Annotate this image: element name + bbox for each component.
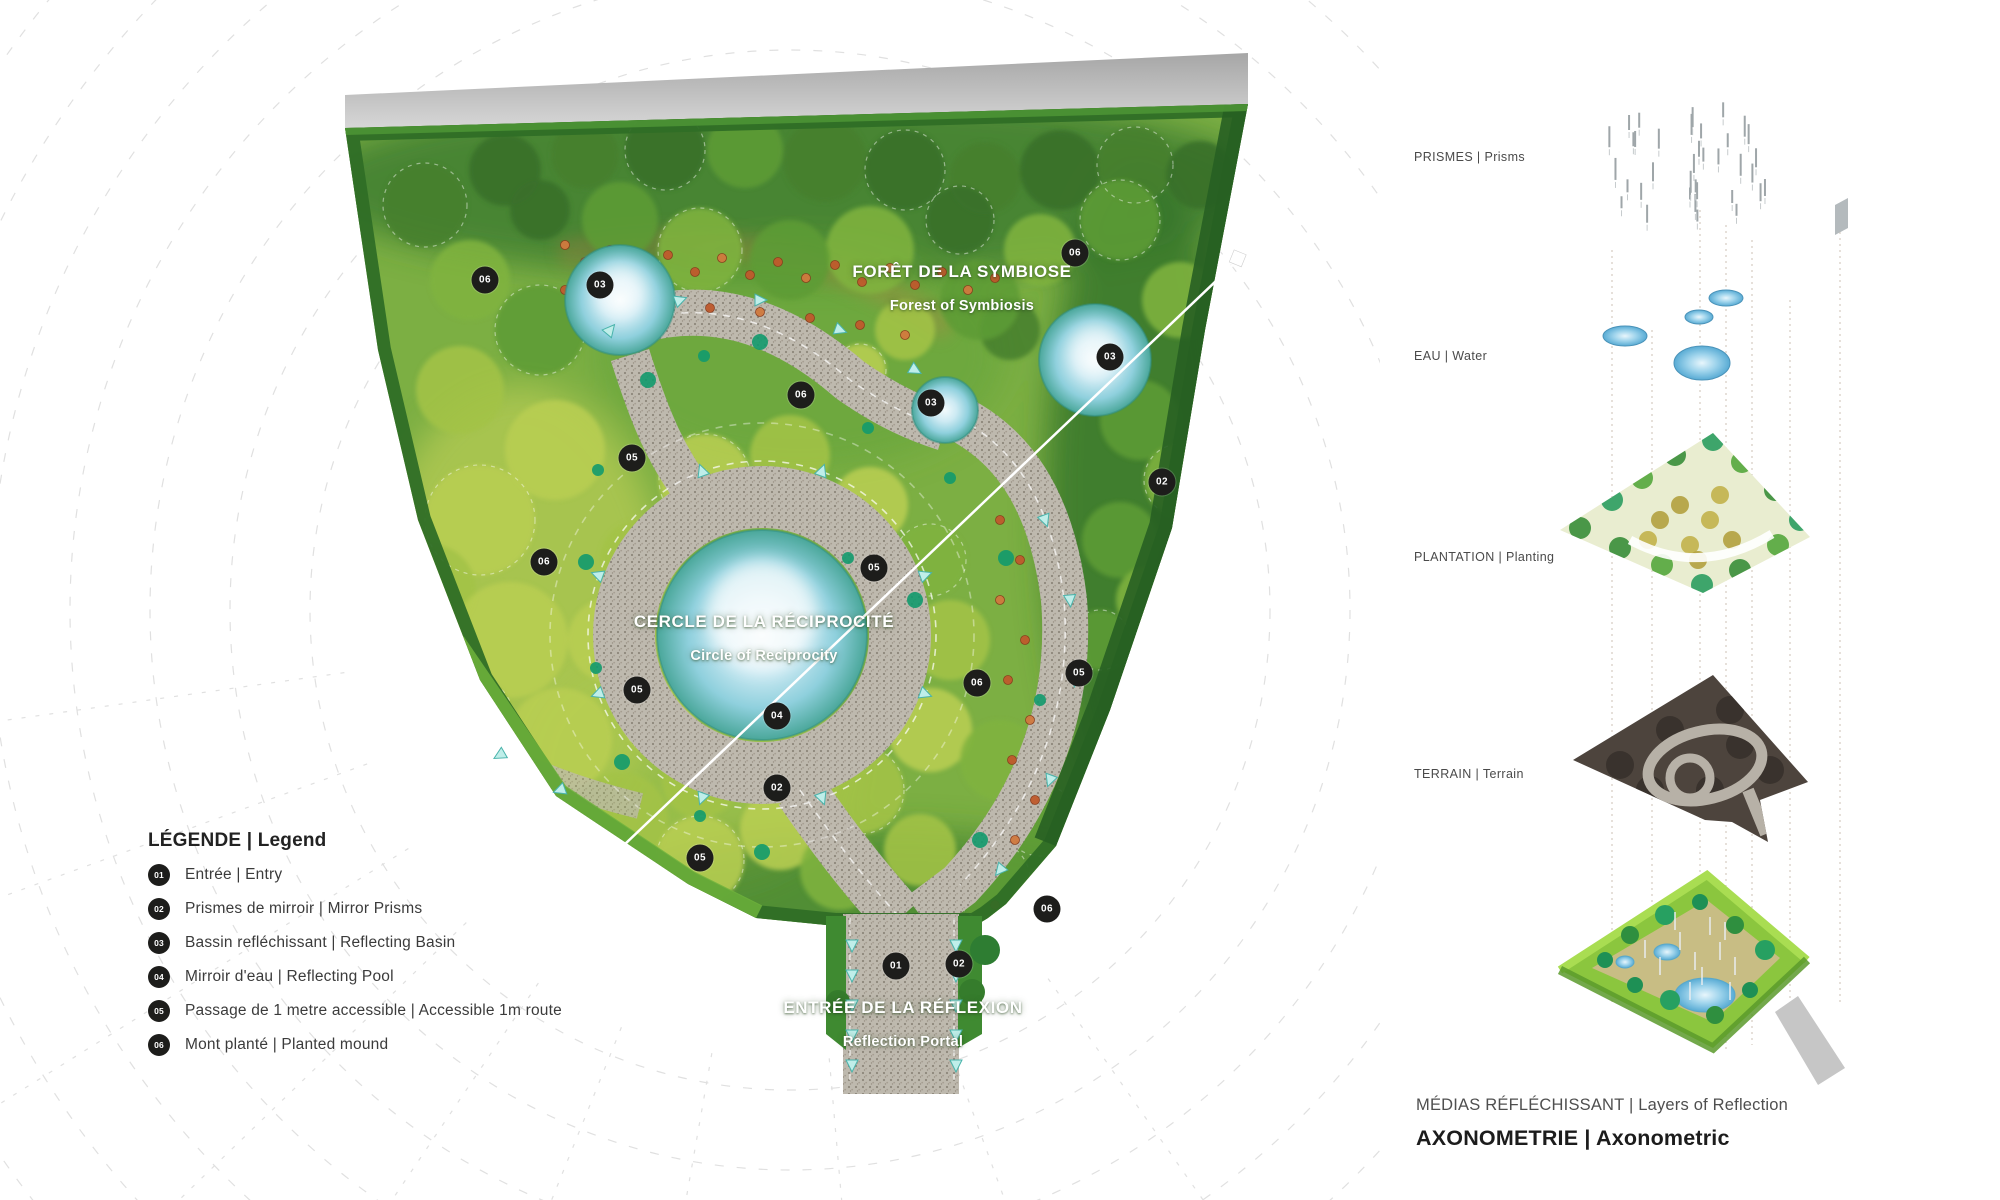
legend-item: 05 Passage de 1 metre accessible | Acces… (148, 1000, 688, 1022)
terrain-layer (1573, 675, 1808, 842)
plan-marker-number: 06 (538, 557, 550, 568)
legend-item: 06 Mont planté | Planted mound (148, 1034, 688, 1056)
legend-item-number: 04 (148, 966, 170, 988)
legend-title: LÉGENDE | Legend (148, 830, 688, 852)
axon-caption-title: AXONOMETRIE | Axonometric (1416, 1126, 1730, 1151)
planting-layer (1560, 429, 1811, 596)
plan-marker-number: 06 (971, 678, 983, 689)
plan-marker: 03 (918, 390, 945, 417)
plan-marker: 06 (1062, 240, 1089, 267)
legend-item: 04 Mirroir d'eau | Reflecting Pool (148, 966, 688, 988)
plan-marker: 02 (764, 775, 791, 802)
legend: LÉGENDE | Legend 01 Entrée | Entry 02 Pr… (148, 830, 688, 1056)
plan-marker-number: 02 (953, 959, 965, 970)
legend-item-label: Mirroir d'eau | Reflecting Pool (185, 968, 394, 986)
legend-item-number: 06 (148, 1034, 170, 1056)
plan-marker-number: 04 (771, 711, 783, 722)
plan-marker-number: 05 (1073, 668, 1085, 679)
plan-marker-number: 02 (1156, 477, 1168, 488)
plan-marker: 06 (531, 549, 558, 576)
plan-marker-number: 06 (795, 390, 807, 401)
plan-label: FORÊT DE LA SYMBIOSE Forest of Symbiosis (852, 262, 1071, 314)
plan-marker: 05 (1066, 660, 1093, 687)
legend-item-label: Passage de 1 metre accessible | Accessib… (185, 1002, 562, 1020)
axon-layer-label: PRISMES | Prisms (1414, 150, 1525, 164)
plan-marker-number: 01 (890, 961, 902, 972)
plan-label: ENTRÉE DE LA RÉFLEXION Reflection Portal (783, 998, 1022, 1050)
legend-item: 02 Prismes de mirroir | Mirror Prisms (148, 898, 688, 920)
prisms-layer (1609, 102, 1765, 230)
exit-path (1775, 996, 1845, 1085)
plan-label-english: Circle of Reciprocity (634, 648, 894, 664)
plan-marker: 02 (1149, 469, 1176, 496)
composite-layer (1560, 875, 1845, 1085)
axon-layer-label: EAU | Water (1414, 349, 1487, 363)
axon-layer-label: TERRAIN | Terrain (1414, 767, 1524, 781)
plan-marker-number: 05 (694, 853, 706, 864)
plan-label-french: CERCLE DE LA RÉCIPROCITÉ (634, 612, 894, 632)
legend-item-label: Entrée | Entry (185, 866, 282, 884)
plan-marker: 04 (764, 703, 791, 730)
plan-marker: 06 (788, 382, 815, 409)
mirror-panel (1835, 198, 1848, 235)
legend-item-number: 03 (148, 932, 170, 954)
landscape-plan-sheet: FORÊT DE LA SYMBIOSE Forest of Symbiosis… (0, 0, 2000, 1200)
axonometric-diagram (1380, 0, 2000, 1200)
plan-marker: 06 (472, 267, 499, 294)
plan-label-french: FORÊT DE LA SYMBIOSE (852, 262, 1071, 282)
plan-marker-number: 05 (631, 685, 643, 696)
legend-item: 01 Entrée | Entry (148, 864, 688, 886)
plan-marker-number: 03 (594, 280, 606, 291)
plan-marker-number: 03 (925, 398, 937, 409)
plan-marker-number: 03 (1104, 352, 1116, 363)
plan-marker: 05 (619, 445, 646, 472)
plan-label-french: ENTRÉE DE LA RÉFLEXION (783, 998, 1022, 1018)
plan-marker-number: 05 (626, 453, 638, 464)
plan-marker-number: 06 (479, 275, 491, 286)
plan-marker: 03 (587, 272, 614, 299)
axon-caption-subtitle: MÉDIAS RÉFLÉCHISSANT | Layers of Reflect… (1416, 1096, 1788, 1115)
legend-item: 03 Bassin refléchissant | Reflecting Bas… (148, 932, 688, 954)
plan-marker: 05 (624, 677, 651, 704)
legend-item-label: Bassin refléchissant | Reflecting Basin (185, 934, 455, 952)
water-layer (1603, 290, 1743, 380)
plan-marker: 01 (883, 953, 910, 980)
plan-marker-number: 05 (868, 563, 880, 574)
legend-item-number: 02 (148, 898, 170, 920)
plan-marker-number: 06 (1069, 248, 1081, 259)
axon-layer-label: PLANTATION | Planting (1414, 550, 1554, 564)
plan-marker: 06 (1034, 896, 1061, 923)
legend-item-number: 05 (148, 1000, 170, 1022)
plan-marker-number: 06 (1041, 904, 1053, 915)
plan-marker: 05 (861, 555, 888, 582)
plan-label-english: Forest of Symbiosis (852, 298, 1071, 314)
plan-label: CERCLE DE LA RÉCIPROCITÉ Circle of Recip… (634, 612, 894, 664)
plan-marker: 02 (946, 951, 973, 978)
plan-marker: 06 (964, 670, 991, 697)
legend-item-label: Prismes de mirroir | Mirror Prisms (185, 900, 422, 918)
legend-item-number: 01 (148, 864, 170, 886)
plan-marker-number: 02 (771, 783, 783, 794)
plan-marker: 05 (687, 845, 714, 872)
legend-item-label: Mont planté | Planted mound (185, 1036, 388, 1054)
plan-marker: 03 (1097, 344, 1124, 371)
plan-label-english: Reflection Portal (783, 1034, 1022, 1050)
